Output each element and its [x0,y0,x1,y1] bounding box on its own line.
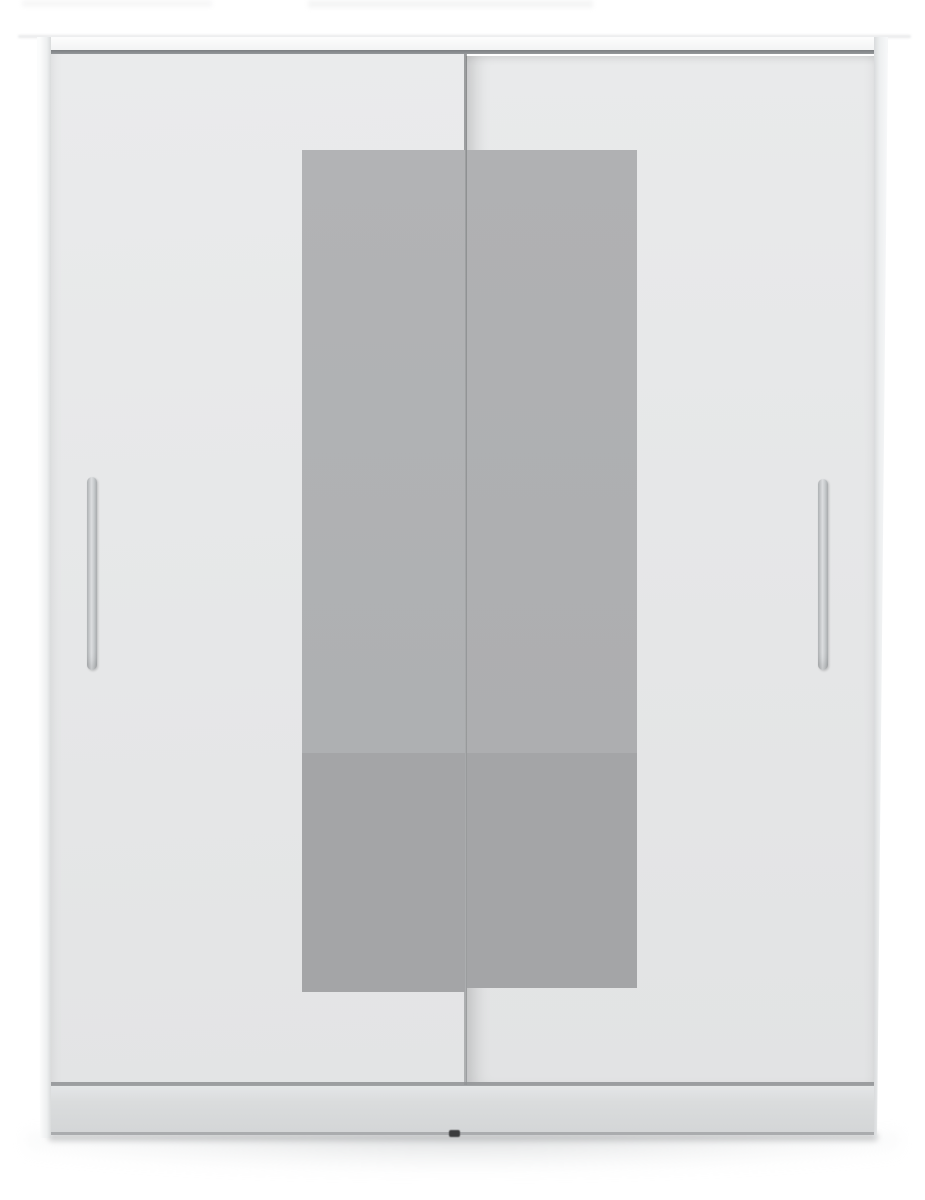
left-side-frame [37,37,51,1138]
left-mirror-lower-section [302,753,465,992]
left-mirror-upper-section [302,150,465,753]
right-door-handle [818,479,828,670]
base-plinth [51,1086,874,1135]
right-mirror-lower-section [467,753,637,988]
left-door-handle [87,477,97,670]
wardrobe-cabinet [37,37,888,1138]
right-side-frame [874,37,888,1138]
top-artifact-left [22,0,212,7]
leveling-foot [449,1130,460,1137]
sliding-track [51,50,874,54]
product-image [0,0,925,1200]
right-mirror-upper-section [467,150,637,753]
top-artifact-center [308,0,593,8]
right-mirror-panel [467,150,637,988]
left-mirror-panel [302,150,465,992]
